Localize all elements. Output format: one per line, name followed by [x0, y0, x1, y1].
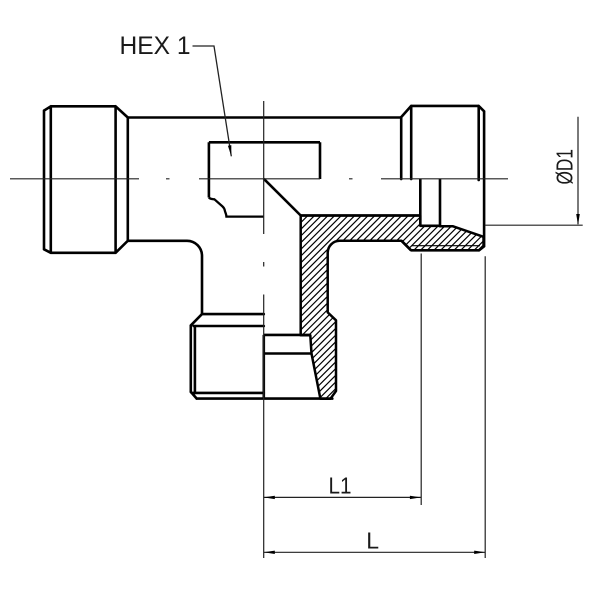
svg-text:HEX 1: HEX 1 [120, 32, 191, 60]
svg-text:L1: L1 [329, 473, 352, 499]
svg-text:ØD1: ØD1 [552, 149, 578, 184]
svg-text:L: L [366, 528, 379, 554]
